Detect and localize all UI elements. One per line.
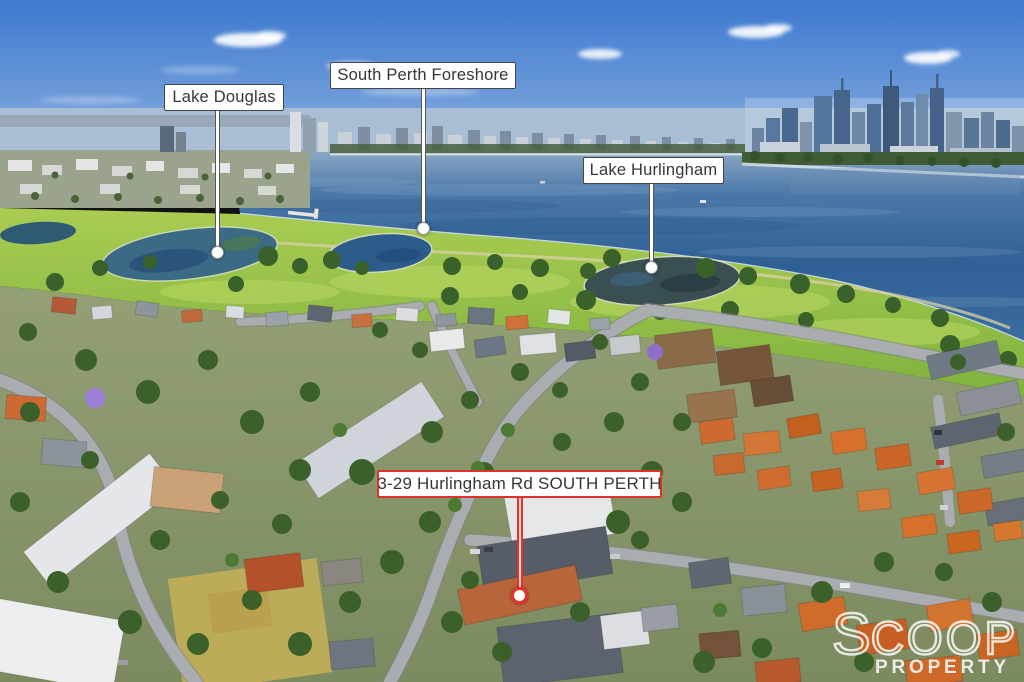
lake-douglas-endpoint-dot <box>211 246 224 259</box>
lake-hurlingham-label: Lake Hurlingham <box>583 157 724 184</box>
lake-hurlingham-leader-line <box>649 183 654 267</box>
listing-photo-stage: Lake Douglas South Perth Foreshore Lake … <box>0 0 1024 682</box>
foreshore-leader-line <box>421 87 426 227</box>
jacaranda-tree <box>647 344 663 360</box>
scoop-property-watermark: SCOOP PROPERTY <box>818 598 1024 682</box>
property-endpoint-dot <box>511 587 528 604</box>
foreshore-endpoint-dot <box>417 222 430 235</box>
watermark-property: PROPERTY <box>875 657 1010 678</box>
property-leader-line <box>517 497 523 595</box>
lake-douglas-leader-line <box>215 109 220 251</box>
property-address-label: 3-29 Hurlingham Rd SOUTH PERTH <box>377 470 662 498</box>
lake-hurlingham-endpoint-dot <box>645 261 658 274</box>
lake-douglas-label: Lake Douglas <box>164 84 284 111</box>
aerial-photo-background <box>0 0 1024 682</box>
jacaranda-tree <box>85 388 105 408</box>
foreshore-label: South Perth Foreshore <box>330 62 516 89</box>
